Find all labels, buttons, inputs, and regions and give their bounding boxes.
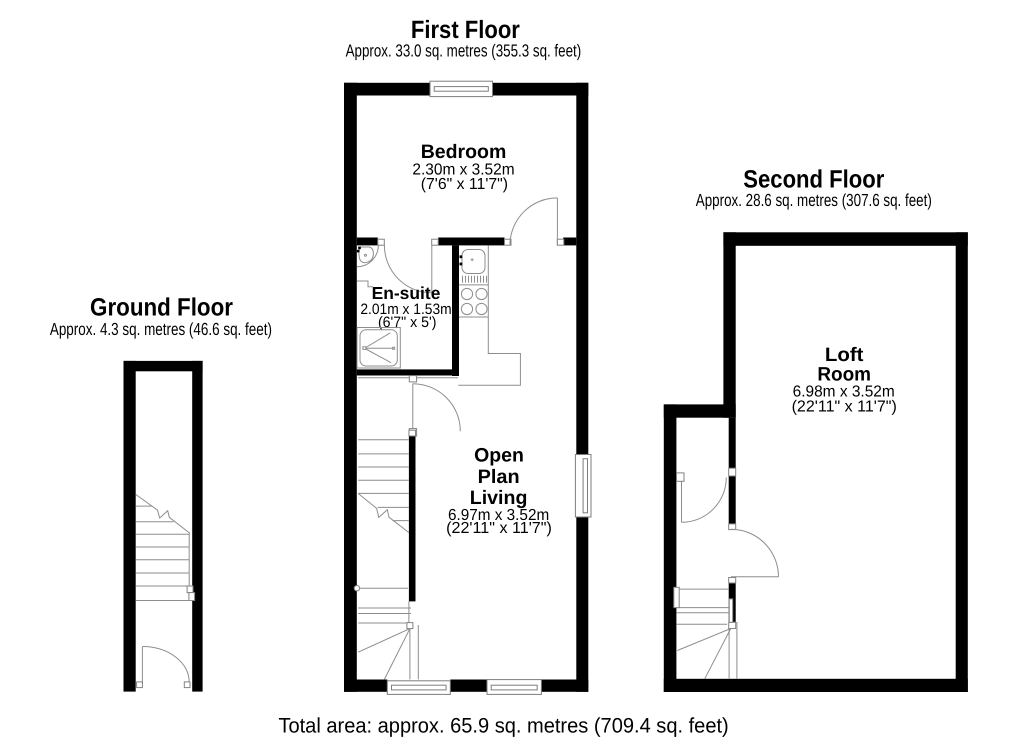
svg-text:Living: Living	[470, 487, 528, 509]
svg-text:Plan: Plan	[478, 466, 520, 488]
svg-text:Approx. 28.6 sq. metres (307.6: Approx. 28.6 sq. metres (307.6 sq. feet)	[696, 190, 932, 210]
svg-text:Approx. 4.3 sq. metres (46.6 s: Approx. 4.3 sq. metres (46.6 sq. feet)	[50, 319, 272, 339]
svg-text:Total area: approx. 65.9 sq. m: Total area: approx. 65.9 sq. metres (709…	[278, 715, 728, 738]
svg-text:Bedroom: Bedroom	[421, 141, 507, 163]
svg-text:En-suite: En-suite	[372, 283, 441, 303]
svg-text:Room: Room	[817, 364, 871, 386]
svg-text:(22'11" x 11'7"): (22'11" x 11'7")	[792, 399, 897, 416]
svg-text:Ground Floor: Ground Floor	[90, 293, 233, 321]
svg-text:Open: Open	[474, 444, 524, 466]
svg-text:Approx. 33.0 sq. metres (355.3: Approx. 33.0 sq. metres (355.3 sq. feet)	[346, 41, 582, 61]
svg-text:(7'6" x 11'7"): (7'6" x 11'7")	[421, 176, 508, 193]
svg-text:(6'7" x 5'): (6'7" x 5')	[378, 314, 437, 331]
svg-text:(22'11" x 11'7"): (22'11" x 11'7")	[446, 520, 552, 537]
